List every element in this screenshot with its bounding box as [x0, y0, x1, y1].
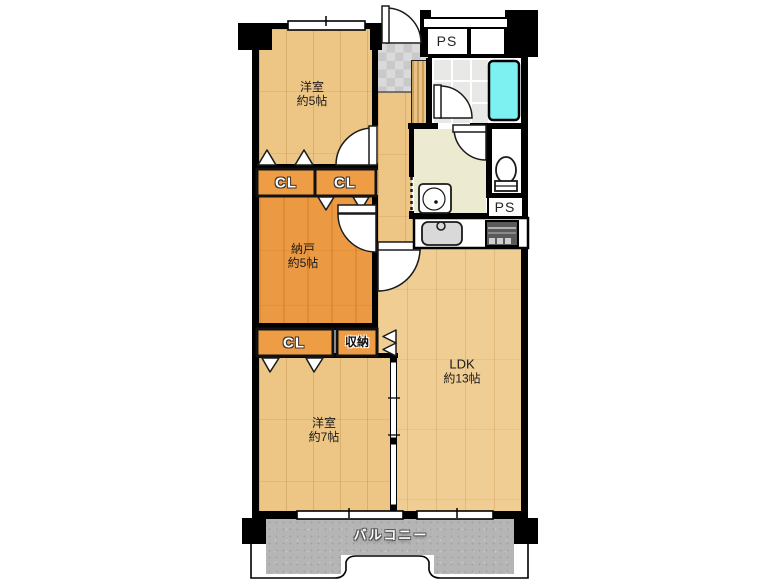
- window-ldk: [417, 511, 493, 519]
- ldk-name: LDK: [443, 358, 480, 373]
- kitchen-faucet: [437, 222, 445, 230]
- storage-room-door-swing: [338, 214, 376, 252]
- bathroom-door-swing: [440, 86, 472, 118]
- bifold-shuno-a: [383, 330, 396, 343]
- wall-balcony-block-left: [242, 518, 266, 544]
- sliding-panel-a: [391, 362, 397, 438]
- bifold-cl3-b: [306, 358, 323, 372]
- ps-lower-label: PS: [495, 199, 516, 215]
- bedroom7-size: 約7帖: [309, 431, 340, 445]
- wall-bottom-c: [493, 511, 521, 519]
- wall-left: [252, 29, 259, 518]
- window-bedroom7: [297, 511, 403, 519]
- balcony-outline: [251, 544, 528, 578]
- floor-plan-canvas: 洋室 約5帖 納戸 約5帖 洋室 約7帖 LDK 約13帖 バルコニー CL C…: [0, 0, 780, 585]
- ldk-door-swing: [378, 249, 420, 291]
- wall-hall-washroom: [409, 129, 414, 177]
- wall-bottom-a: [259, 511, 297, 519]
- wall-top-a: [252, 23, 292, 29]
- ps-top-bar: [423, 18, 508, 28]
- toilet-door-leaf: [453, 125, 486, 132]
- bedroom5-door-leaf: [369, 126, 377, 165]
- stove-burner-2: [497, 238, 503, 244]
- bedroom5-label: 洋室 約5帖: [297, 81, 328, 109]
- ps-top-label: PS: [437, 33, 458, 49]
- wall-bath-bottom-a: [408, 123, 438, 129]
- closet-cl1-label: CL: [275, 174, 297, 191]
- sliding-panel-b: [391, 444, 397, 505]
- meter-box: [470, 28, 505, 55]
- entrance-door-swing: [386, 8, 421, 43]
- plan-structure-overlay: [0, 0, 780, 585]
- bedroom7-label: 洋室 約7帖: [309, 417, 340, 445]
- toilet-bowl: [496, 157, 516, 183]
- wall-bath-left: [426, 58, 432, 123]
- wash-basin-drain: [434, 200, 438, 204]
- wall-bedroom5-hall-a: [372, 29, 378, 126]
- wall-right: [521, 55, 528, 518]
- storage-room-door-leaf: [338, 205, 376, 213]
- wash-basin-bowl: [423, 188, 445, 210]
- sliding-door-bedroom7-ldk: [388, 362, 400, 505]
- toilet-door-swing: [454, 128, 486, 160]
- bedroom5-door-swing: [336, 128, 373, 165]
- bifold-cl3-a: [262, 358, 279, 372]
- bathroom-door-leaf: [434, 85, 441, 118]
- wall-balcony-block-right: [514, 518, 538, 544]
- storage-room-size: 約5帖: [288, 257, 319, 271]
- bifold-cl1-b: [295, 150, 313, 165]
- closet-cl3-label: CL: [283, 334, 305, 351]
- ldk-label: LDK 約13帖: [443, 358, 480, 387]
- storage-room-label: 納戸 約5帖: [288, 243, 319, 271]
- bathtub: [489, 61, 519, 120]
- wall-bottom-b: [403, 511, 417, 519]
- closet-shuno-label: 収納: [345, 336, 369, 350]
- storage-room-name: 納戸: [288, 243, 319, 257]
- stove-burner-3: [505, 238, 511, 244]
- bedroom5-size: 約5帖: [297, 95, 328, 109]
- bedroom7-name: 洋室: [309, 417, 340, 431]
- closet-cl2-label: CL: [334, 174, 356, 191]
- wall-toilet-left: [486, 129, 492, 198]
- entrance-door-leaf: [382, 6, 389, 43]
- floor-plan-page: { "plan": { "rooms": { "bedroom5": {"nam…: [0, 0, 780, 585]
- bedroom5-name: 洋室: [297, 81, 328, 95]
- wall-corner-block-top-right: [505, 10, 538, 57]
- stove-burner-1: [489, 238, 495, 244]
- balcony-label: バルコニー: [354, 529, 429, 544]
- bifold-cl1-a: [258, 150, 276, 165]
- ldk-size: 約13帖: [443, 373, 480, 387]
- bifold-cl2-a: [318, 197, 334, 210]
